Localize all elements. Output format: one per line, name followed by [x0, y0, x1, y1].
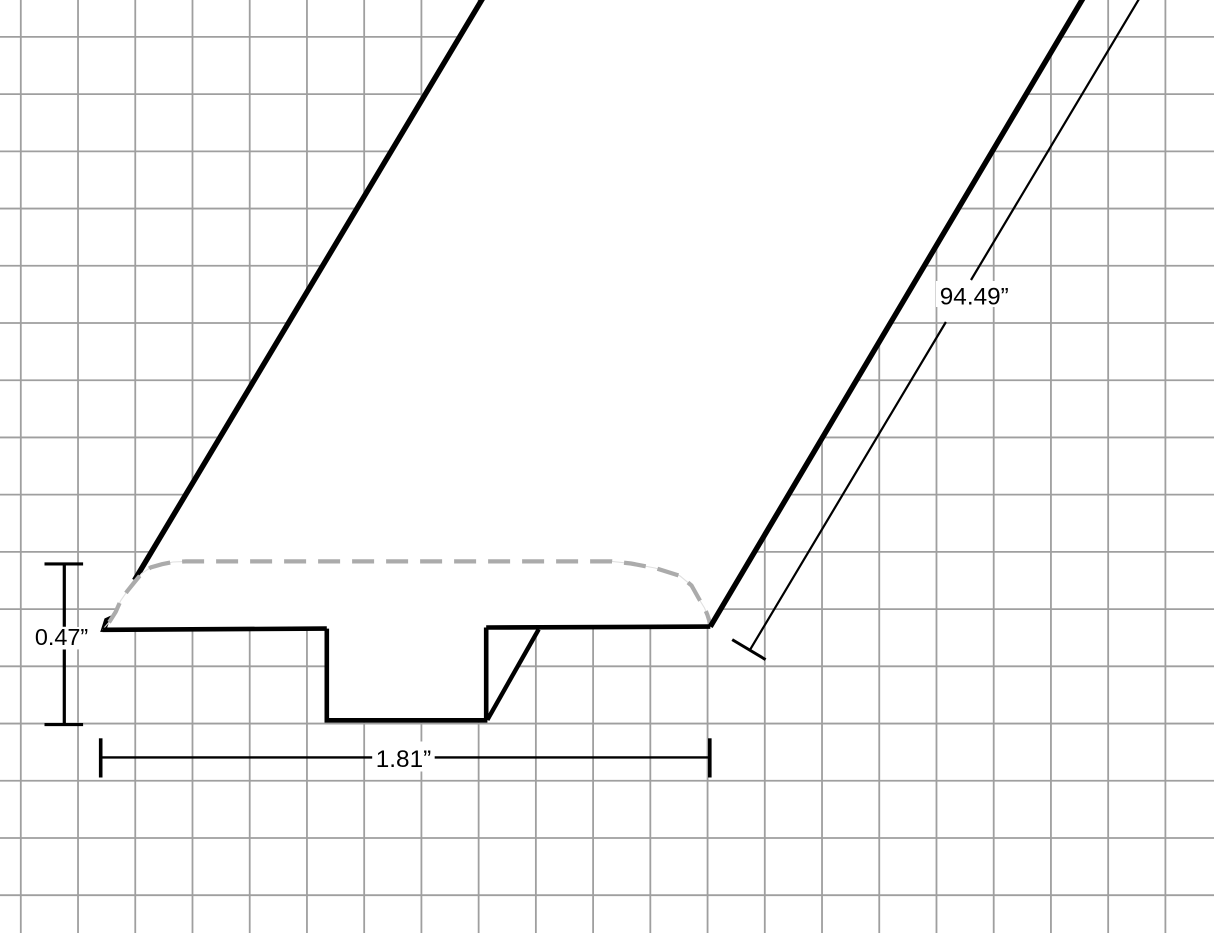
svg-text:94.49”: 94.49”	[940, 284, 1009, 311]
svg-text:1.81”: 1.81”	[376, 746, 431, 773]
svg-text:0.47”: 0.47”	[35, 624, 88, 650]
